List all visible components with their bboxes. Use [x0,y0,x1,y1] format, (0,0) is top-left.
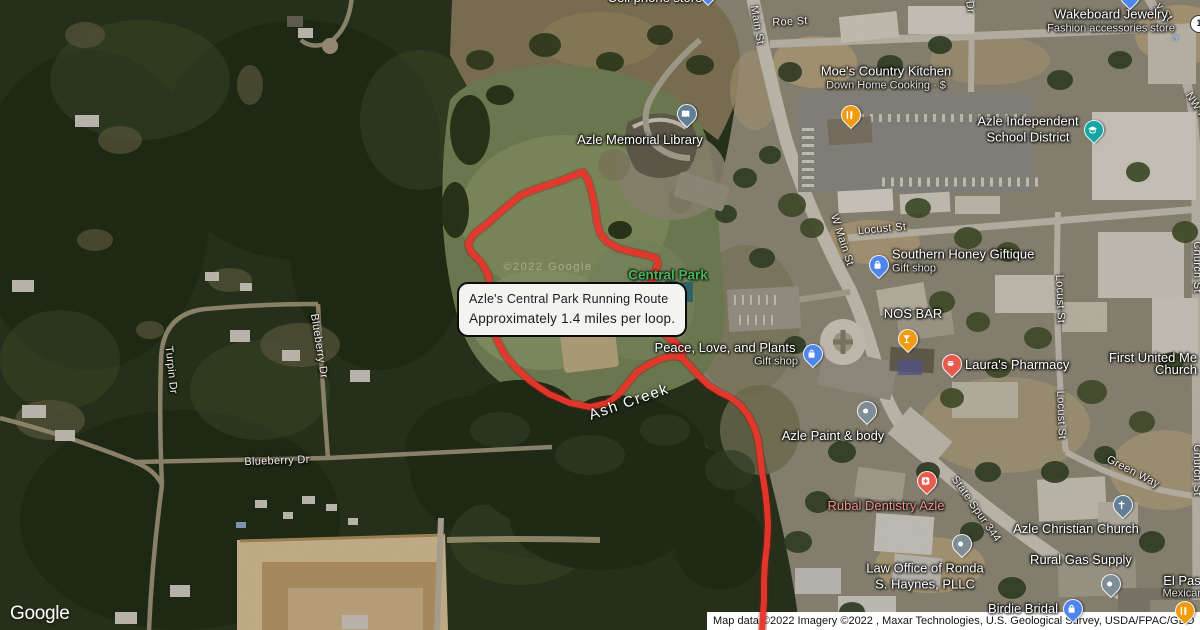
route-info-tooltip: Azle's Central Park Running Route Approx… [457,282,687,337]
poi-nos-bar[interactable]: NOS BAR [884,306,943,322]
poi-rural-gas-supply-text: Rural Gas Supply [1030,552,1132,568]
poi-azle-christian-church-text: Azle Christian Church [1013,521,1139,537]
poi-first-united-methodist-line2-text: Church [1155,362,1197,378]
area-label-central-park[interactable]: Central Park [628,268,708,283]
poi-wakeboard-jewelry[interactable]: Wakeboard JewelryFashion accessories sto… [1047,7,1175,36]
poi-azle-memorial-library[interactable]: Azle Memorial Library [577,132,703,148]
tile-watermark: ©2022 Google [503,261,592,273]
route-info-subtitle: Approximately 1.4 miles per loop. [469,309,675,329]
map-attribution: Map data ©2022 Imagery ©2022 , Maxar Tec… [707,612,1200,630]
satellite-map[interactable]: Map data ©2022 Imagery ©2022 , Maxar Tec… [0,0,1200,630]
poi-azle-independent-school-district-text: Azle Independent [977,113,1078,129]
poi-first-united-methodist-line2[interactable]: Church [1155,362,1197,378]
poi-azle-independent-school-district-text: School District [977,129,1078,145]
poi-law-office-ronda-haynes-text: S. Haynes, PLLC [866,576,984,592]
street-label-church-st: Church St [1191,444,1200,496]
poi-southern-honey-giftique-text: Southern Honey Giftique [892,247,1034,263]
poi-rubal-dentistry-azle[interactable]: Rubal Dentistry Azle [827,498,944,514]
street-label-church-st: Church St [1191,241,1200,293]
poi-southern-honey-giftique[interactable]: Southern Honey GiftiqueGift shop [892,247,1034,276]
poi-southern-honey-giftique-subtitle: Gift shop [892,262,1034,275]
street-label-blueberry-dr: Blueberry Dr [244,454,310,468]
poi-birdie-bridal[interactable]: Birdie Bridal [988,601,1058,617]
poi-birdie-bridal-text: Birdie Bridal [988,601,1058,617]
poi-peace-love-and-plants-sub-text: Gift shop [754,355,798,368]
street-label-roe-st: Roe St [772,15,808,29]
street-label-locust-st: Locust St [1054,391,1068,440]
poi-azle-independent-school-district[interactable]: Azle IndependentSchool District [977,113,1078,144]
poi-moes-country-kitchen-text: Moe's Country Kitchen [821,64,951,80]
poi-law-office-ronda-haynes-text: Law Office of Ronda [866,560,984,576]
poi-wakeboard-jewelry-subtitle: Fashion accessories store [1047,22,1175,35]
poi-azle-christian-church[interactable]: Azle Christian Church [1013,521,1139,537]
poi-cell-phone-store[interactable]: Cell phone store [608,0,703,6]
poi-peace-love-and-plants[interactable]: Peace, Love, and Plants [655,340,796,356]
poi-el-paso-line2[interactable]: Mexican [1163,587,1200,600]
street-label-locust-st: Locust St [1053,275,1067,324]
poi-peace-love-and-plants-text: Peace, Love, and Plants [655,340,796,356]
poi-rubal-dentistry-azle-text: Rubal Dentistry Azle [827,498,944,514]
poi-law-office-ronda-haynes[interactable]: Law Office of RondaS. Haynes, PLLC [866,560,984,591]
poi-lauras-pharmacy-text: Laura's Pharmacy [965,357,1069,373]
poi-rural-gas-supply[interactable]: Rural Gas Supply [1030,552,1132,568]
street-label-dr: Dr [963,0,977,14]
poi-azle-memorial-library-text: Azle Memorial Library [577,132,703,148]
poi-nos-bar-text: NOS BAR [884,306,943,322]
route-info-title: Azle's Central Park Running Route [469,289,675,309]
poi-peace-love-and-plants-sub[interactable]: Gift shop [754,355,798,368]
google-logo[interactable]: Google [10,603,69,625]
poi-wakeboard-jewelry-text: Wakeboard Jewelry [1047,7,1175,23]
poi-lauras-pharmacy[interactable]: Laura's Pharmacy [965,357,1069,373]
poi-el-paso-line2-text: Mexican [1163,587,1200,600]
poi-azle-paint-and-body-text: Azle Paint & body [782,428,885,444]
poi-azle-paint-and-body[interactable]: Azle Paint & body [782,428,885,444]
poi-moes-country-kitchen[interactable]: Moe's Country KitchenDown Home Cooking ·… [821,64,951,93]
poi-moes-country-kitchen-subtitle: Down Home Cooking · $ [821,79,951,92]
poi-cell-phone-store-text: Cell phone store [608,0,703,6]
